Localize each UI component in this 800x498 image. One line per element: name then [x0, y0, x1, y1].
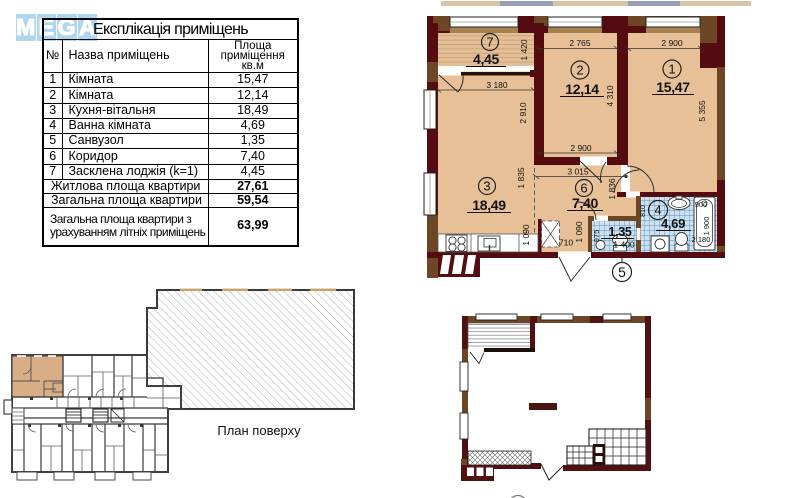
- svg-text:4: 4: [654, 203, 661, 218]
- svg-text:3 015: 3 015: [567, 167, 589, 177]
- svg-text:3: 3: [483, 179, 490, 194]
- svg-text:2 765: 2 765: [569, 38, 591, 48]
- svg-text:3 180: 3 180: [486, 80, 508, 90]
- svg-text:2 900: 2 900: [661, 38, 683, 48]
- svg-text:900: 900: [695, 200, 708, 209]
- svg-text:710: 710: [559, 238, 573, 248]
- svg-text:2: 2: [576, 63, 583, 78]
- svg-text:1 090: 1 090: [521, 224, 531, 246]
- svg-text:6: 6: [580, 181, 587, 196]
- svg-text:4,69: 4,69: [661, 216, 685, 231]
- svg-text:1 835: 1 835: [516, 167, 526, 189]
- svg-text:2 180: 2 180: [692, 235, 711, 244]
- svg-text:2 900: 2 900: [570, 143, 592, 153]
- svg-text:4,45: 4,45: [473, 51, 500, 67]
- svg-text:15,47: 15,47: [656, 79, 690, 95]
- svg-text:1 900: 1 900: [702, 217, 711, 236]
- svg-text:1 090: 1 090: [574, 221, 584, 243]
- svg-text:4 310: 4 310: [605, 85, 615, 107]
- svg-text:1 420: 1 420: [519, 39, 529, 61]
- svg-text:1 836: 1 836: [607, 178, 617, 200]
- svg-text:810: 810: [640, 205, 647, 217]
- svg-text:18,49: 18,49: [472, 197, 506, 213]
- svg-text:975: 975: [592, 230, 601, 243]
- svg-text:План поверху: План поверху: [217, 423, 301, 438]
- svg-text:5: 5: [618, 264, 626, 280]
- svg-text:1,35: 1,35: [608, 225, 631, 239]
- svg-text:2 910: 2 910: [518, 102, 528, 124]
- svg-text:5 355: 5 355: [697, 100, 707, 122]
- svg-text:1 400: 1 400: [613, 240, 635, 250]
- svg-text:7: 7: [486, 35, 493, 50]
- svg-text:7,40: 7,40: [572, 195, 599, 211]
- svg-text:12,14: 12,14: [565, 81, 599, 97]
- svg-text:1: 1: [668, 62, 675, 77]
